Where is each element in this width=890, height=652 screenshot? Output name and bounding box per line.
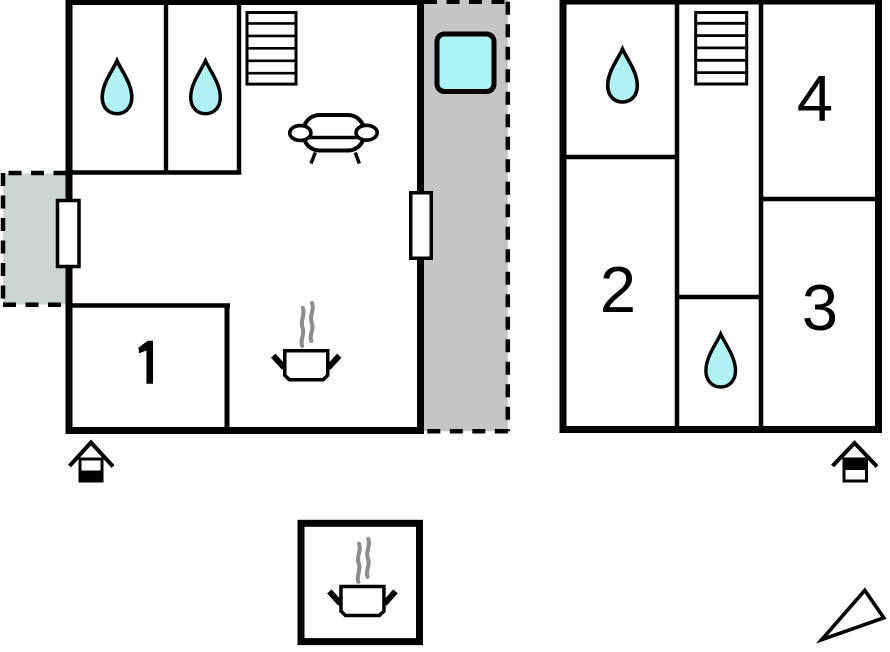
svg-text:3: 3 <box>802 271 838 344</box>
svg-text:4: 4 <box>797 62 833 135</box>
svg-text:2: 2 <box>600 253 636 326</box>
